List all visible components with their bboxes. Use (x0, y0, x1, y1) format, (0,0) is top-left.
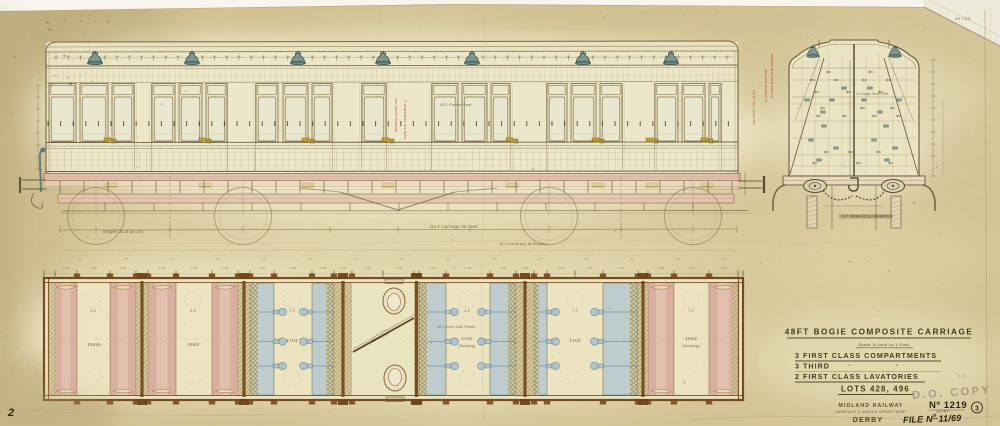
svg-text:1.10: 1.10 (586, 266, 592, 270)
svg-text:3 THIRD: 3 THIRD (795, 362, 830, 371)
svg-text:4.8: 4.8 (78, 257, 83, 261)
svg-text:4.8: 4.8 (216, 257, 221, 261)
svg-text:1.10: 1.10 (90, 266, 96, 270)
svg-text:1.10: 1.10 (522, 266, 528, 270)
svg-text:4.8: 4.8 (538, 257, 543, 261)
svg-text:1.10: 1.10 (222, 266, 228, 270)
svg-text:Third: Third (685, 337, 697, 342)
svg-text:1.10: 1.10 (688, 266, 694, 270)
svg-text:N.4 Lavatory at Bogies: N.4 Lavatory at Bogies (500, 241, 547, 246)
svg-text:First: First (461, 337, 473, 342)
svg-text:1.10: 1.10 (320, 266, 326, 270)
svg-text:4.8: 4.8 (354, 257, 359, 261)
svg-text:If more than one vehicle: If more than one vehicle (770, 54, 774, 98)
svg-text:4.8: 4.8 (262, 257, 267, 261)
svg-text:see sheet 2 for detail: see sheet 2 for detail (752, 90, 756, 125)
svg-text:First: First (286, 339, 298, 344)
svg-text:4.8: 4.8 (676, 257, 681, 261)
svg-text:1.10: 1.10 (364, 266, 370, 270)
svg-text:(Smoking): (Smoking) (682, 344, 699, 348)
svg-text:CARRIAGE & WAGON DEPARTMENT: CARRIAGE & WAGON DEPARTMENT (835, 410, 907, 414)
svg-text:7.0: 7.0 (572, 309, 578, 313)
svg-text:is ordered see note: is ordered see note (764, 69, 768, 102)
svg-text:4.8: 4.8 (90, 309, 96, 313)
svg-text:(Smoking): (Smoking) (458, 344, 475, 348)
svg-text:3: 3 (975, 406, 979, 413)
svg-text:1.10: 1.10 (290, 266, 296, 270)
svg-text:1.10: 1.10 (617, 266, 623, 270)
svg-text:1.10: 1.10 (558, 266, 564, 270)
svg-text:1.10: 1.10 (720, 266, 726, 270)
svg-text:14 Guage Steel Plate: 14 Guage Steel Plate (856, 92, 888, 96)
svg-text:2 FIRST CLASS LAVATORIES: 2 FIRST CLASS LAVATORIES (795, 372, 919, 381)
svg-text:1.10: 1.10 (658, 266, 664, 270)
svg-text:7.0: 7.0 (688, 309, 694, 313)
svg-text:4.8: 4.8 (584, 257, 589, 261)
svg-text:First: First (569, 339, 581, 344)
svg-text:1.10: 1.10 (259, 266, 265, 270)
svg-text:4.6: 4.6 (464, 309, 470, 313)
svg-text:4.8: 4.8 (446, 257, 451, 261)
svg-text:1.10: 1.10 (191, 266, 197, 270)
svg-text:•: • (849, 363, 851, 369)
svg-text:4.8: 4.8 (124, 257, 129, 261)
svg-text:4.8: 4.8 (630, 257, 635, 261)
svg-text:18'1 Centre Seat: 18'1 Centre Seat (440, 103, 472, 107)
svg-text:4-57: 4-57 (958, 374, 967, 378)
svg-text:4.8: 4.8 (308, 257, 313, 261)
svg-text:1.10: 1.10 (340, 266, 346, 270)
svg-text:4.8: 4.8 (170, 257, 175, 261)
svg-text:No.1 Carriage 48 Feet: No.1 Carriage 48 Feet (430, 224, 478, 229)
svg-text:1.10: 1.10 (500, 266, 506, 270)
svg-text:Third: Third (87, 343, 99, 348)
svg-text:4.8: 4.8 (722, 257, 727, 261)
svg-text:Scale ¾ Inch to 1 Foot: Scale ¾ Inch to 1 Foot (858, 342, 909, 347)
svg-text:MIDLAND RAILWAY: MIDLAND RAILWAY (838, 403, 903, 409)
svg-text:1.10: 1.10 (429, 266, 435, 270)
svg-text:4.8: 4.8 (492, 257, 497, 261)
svg-text:see traced drawing: see traced drawing (394, 98, 398, 132)
svg-text:7.0: 7.0 (289, 309, 295, 313)
svg-text:Bogies 31.6 at ctrs: Bogies 31.6 at ctrs (103, 229, 144, 234)
svg-text:4.8: 4.8 (400, 257, 405, 261)
svg-text:1.10: 1.10 (63, 266, 69, 270)
svg-text:3 FIRST CLASS COMPARTMENTS: 3 FIRST CLASS COMPARTMENTS (795, 351, 937, 360)
svg-text:Third: Third (187, 343, 199, 348)
svg-text:4.8: 4.8 (190, 309, 196, 313)
svg-text:1.10: 1.10 (120, 266, 126, 270)
svg-text:LOTS 428, 496: LOTS 428, 496 (841, 385, 910, 394)
svg-text:48FT BOGIE COMPOSITE CARRIA: 48FT BOGIE COMPOSITE CARRIAGE (785, 328, 974, 337)
svg-text:1.10: 1.10 (395, 266, 401, 270)
svg-text:10'1 Over Gab Plates: 10'1 Over Gab Plates (437, 325, 475, 329)
svg-text:If seat backs are fixed: If seat backs are fixed (403, 100, 407, 140)
svg-text:46.238: 46.238 (955, 16, 971, 21)
svg-text:1.10: 1.10 (159, 266, 165, 270)
svg-text:2: 2 (7, 407, 14, 419)
svg-text:1.10: 1.10 (465, 266, 471, 270)
svg-text:•: • (896, 363, 898, 369)
